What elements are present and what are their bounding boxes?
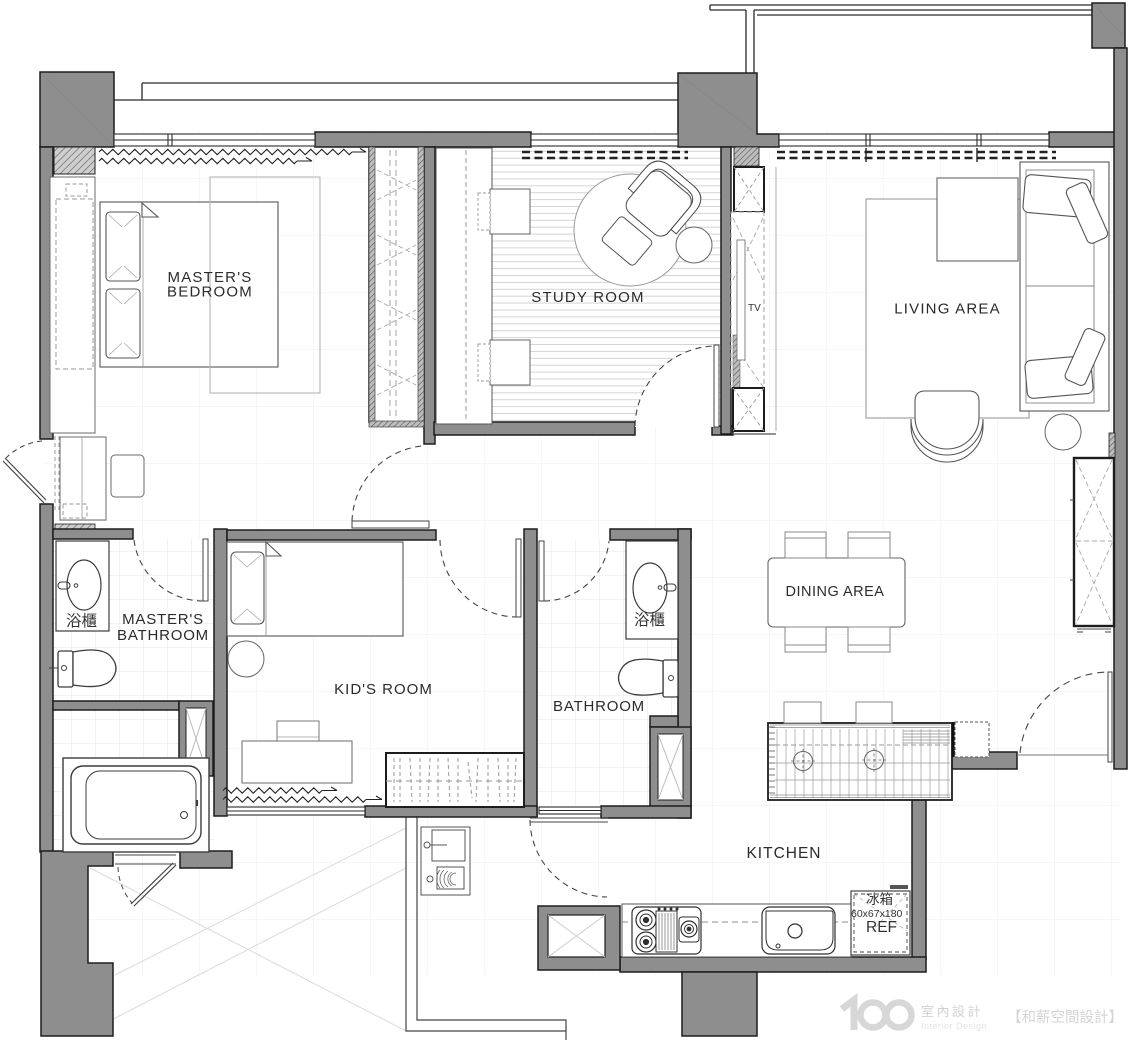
- svg-text:【和薪空間設計】: 【和薪空間設計】: [1007, 1009, 1123, 1026]
- svg-text:STUDY ROOM: STUDY ROOM: [531, 289, 644, 306]
- svg-text:BATHROOM: BATHROOM: [553, 698, 645, 715]
- svg-text:KID'S ROOM: KID'S ROOM: [334, 681, 433, 698]
- svg-text:LIVING AREA: LIVING AREA: [894, 301, 1001, 318]
- svg-text:浴櫃: 浴櫃: [634, 611, 665, 629]
- svg-text:BEDROOM: BEDROOM: [167, 284, 253, 301]
- svg-text:Interior Design: Interior Design: [921, 1021, 987, 1031]
- svg-text:REF: REF: [866, 919, 897, 936]
- svg-text:浴櫃: 浴櫃: [66, 612, 97, 630]
- svg-text:KITCHEN: KITCHEN: [746, 845, 821, 862]
- svg-text:BATHROOM: BATHROOM: [117, 627, 209, 644]
- svg-text:室內設計: 室內設計: [921, 1004, 983, 1019]
- svg-text:冰箱: 冰箱: [866, 892, 893, 907]
- svg-text:TV: TV: [748, 303, 761, 314]
- svg-text:DINING AREA: DINING AREA: [786, 584, 885, 600]
- svg-text:MASTER'S: MASTER'S: [122, 611, 204, 628]
